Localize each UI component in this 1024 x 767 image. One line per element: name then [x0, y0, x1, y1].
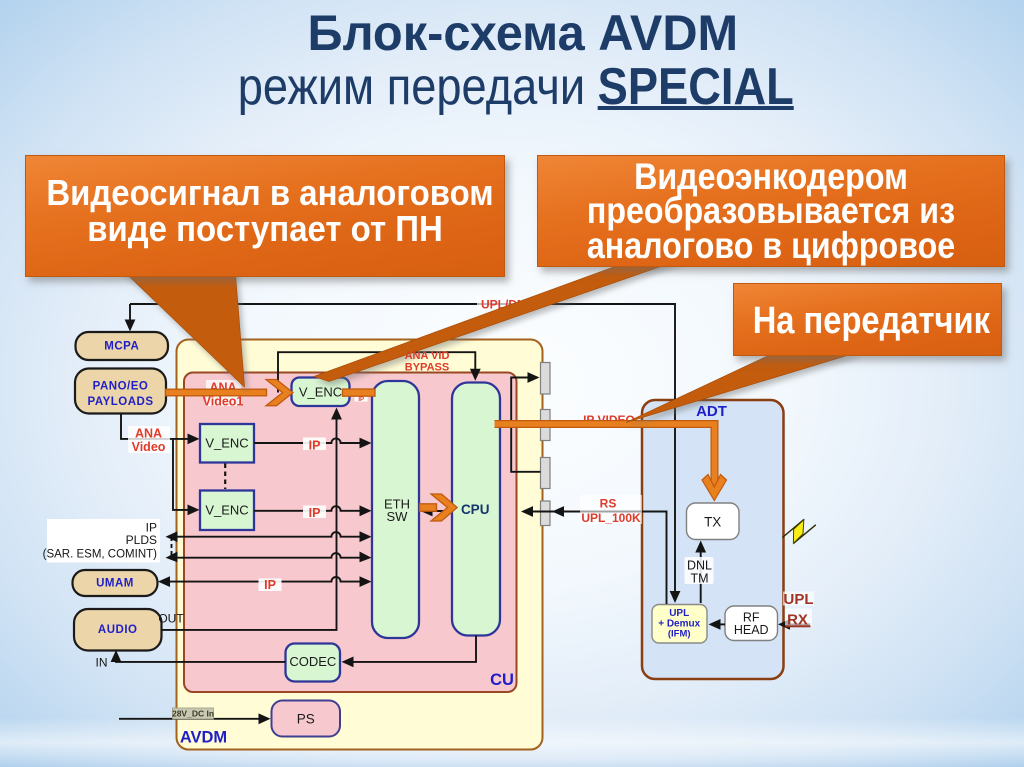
- svg-text:HEAD: HEAD: [734, 623, 769, 637]
- svg-text:PLDS: PLDS: [126, 533, 157, 547]
- svg-text:UPL_100K: UPL_100K: [581, 511, 641, 525]
- svg-text:IN: IN: [96, 656, 108, 670]
- svg-text:IP: IP: [264, 578, 276, 592]
- svg-text:SW: SW: [387, 509, 409, 524]
- svg-text:CODEC: CODEC: [289, 654, 336, 669]
- svg-text:PAYLOADS: PAYLOADS: [88, 396, 154, 408]
- svg-text:IP: IP: [309, 439, 321, 453]
- svg-text:AUDIO: AUDIO: [98, 624, 138, 636]
- svg-text:ADT: ADT: [696, 403, 727, 420]
- svg-text:AVDM: AVDM: [180, 729, 227, 747]
- svg-text:PS: PS: [297, 712, 315, 727]
- svg-text:TM: TM: [690, 572, 708, 586]
- svg-text:(IFM): (IFM): [668, 629, 691, 640]
- svg-text:V_ENC: V_ENC: [205, 503, 248, 518]
- svg-text:PANO/EO: PANO/EO: [93, 381, 149, 393]
- svg-text:V_ENC: V_ENC: [299, 385, 342, 400]
- svg-text:V_ENC: V_ENC: [205, 436, 248, 451]
- svg-text:Video1: Video1: [203, 395, 244, 409]
- svg-text:28V_DC In: 28V_DC In: [172, 708, 214, 718]
- svg-text:UMAM: UMAM: [96, 577, 134, 589]
- svg-text:Video: Video: [132, 440, 166, 454]
- svg-text:BYPASS: BYPASS: [405, 362, 449, 374]
- svg-text:IP: IP: [309, 506, 321, 520]
- svg-text:IP: IP: [358, 397, 364, 403]
- svg-text:RS: RS: [600, 497, 617, 511]
- svg-text:TX: TX: [704, 515, 721, 530]
- svg-text:ANA VID: ANA VID: [405, 350, 450, 362]
- svg-text:CU: CU: [490, 671, 514, 689]
- svg-text:UPL: UPL: [784, 591, 814, 608]
- svg-text:(SAR. ESM, COMINT): (SAR. ESM, COMINT): [43, 549, 158, 561]
- svg-text:ANA: ANA: [135, 427, 162, 441]
- svg-text:OUT: OUT: [158, 612, 184, 626]
- svg-text:DNL: DNL: [687, 559, 712, 573]
- svg-text:MCPA: MCPA: [104, 340, 139, 352]
- svg-text:CPU: CPU: [461, 502, 490, 517]
